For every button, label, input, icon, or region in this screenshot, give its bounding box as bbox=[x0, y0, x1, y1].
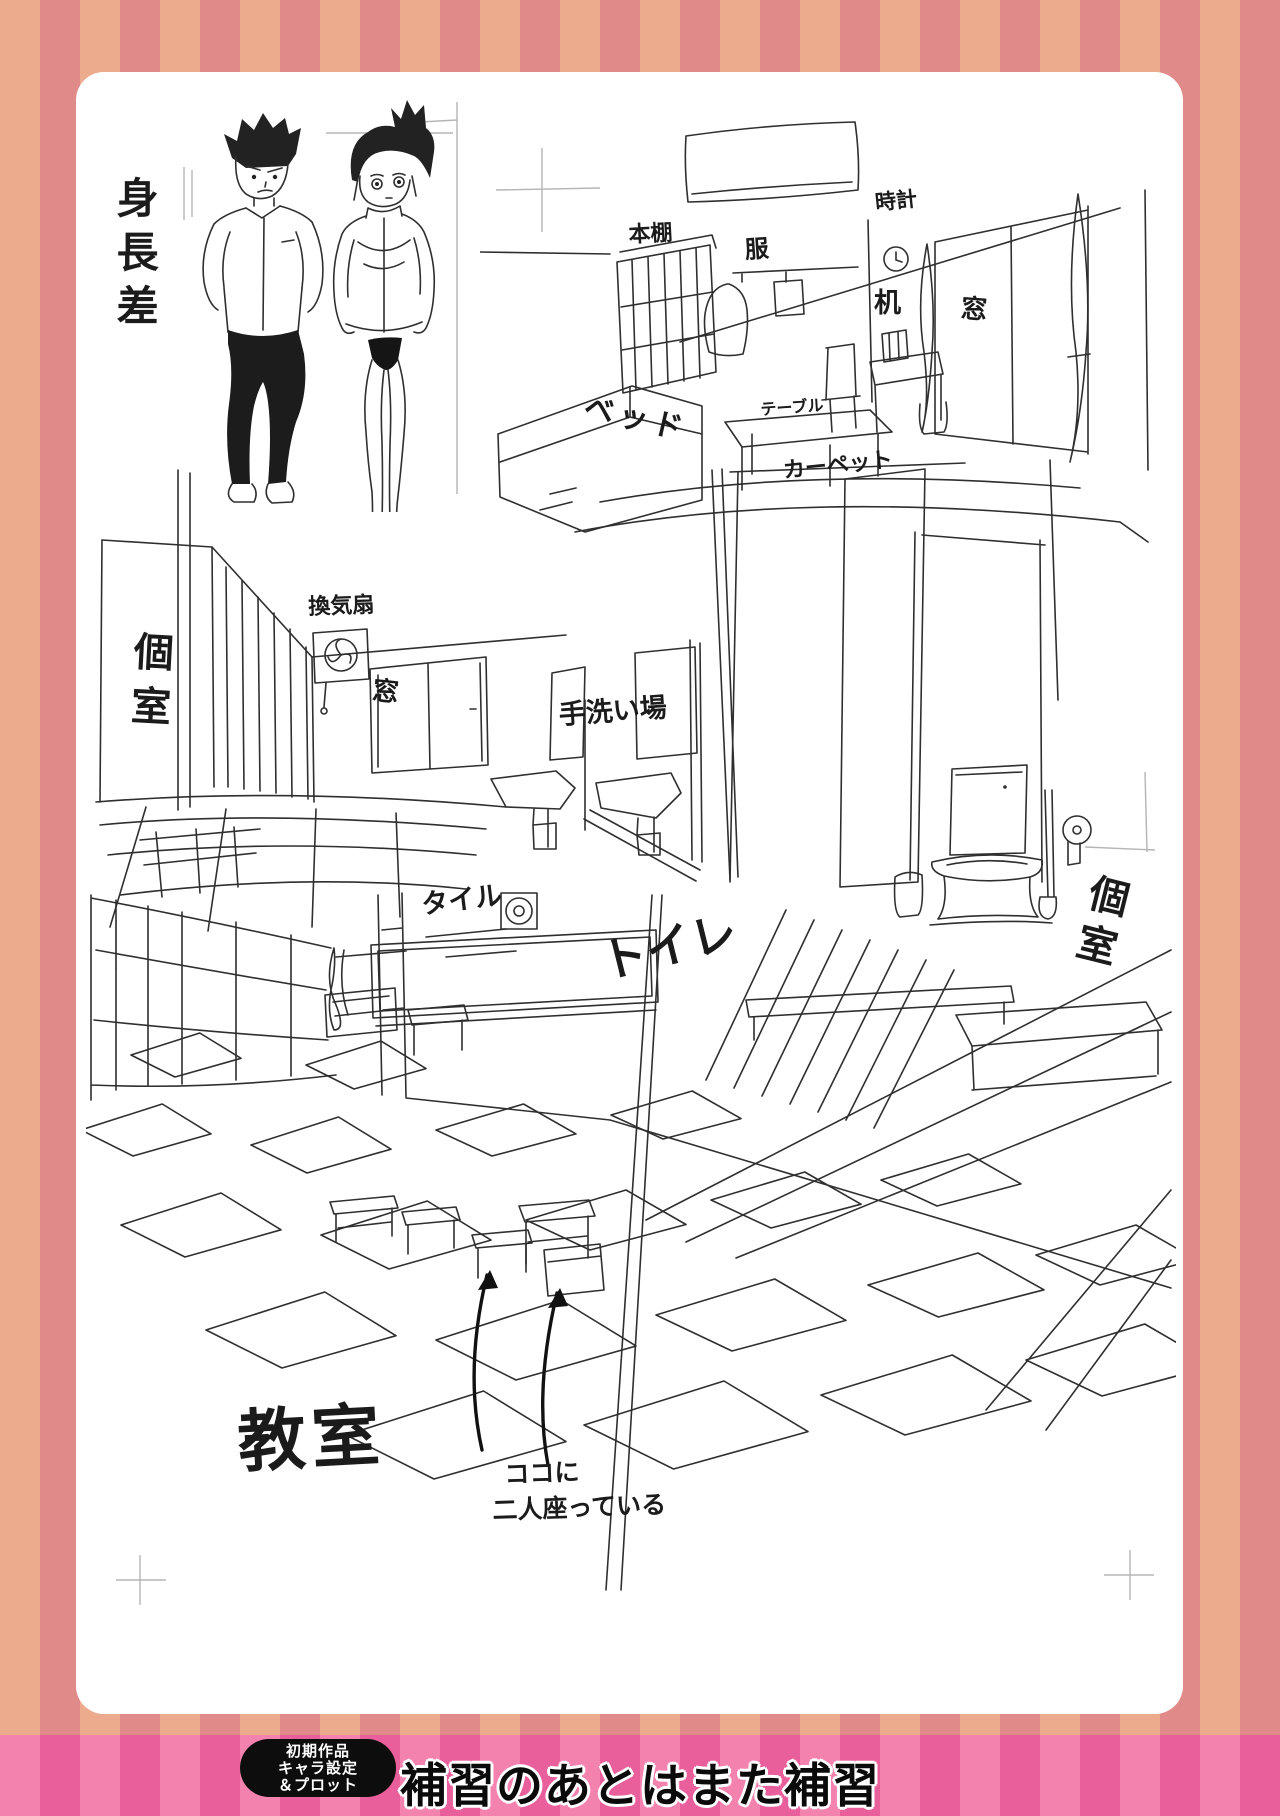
classroom-note-line1: ココに bbox=[504, 1459, 580, 1488]
height-diff-label: 身長差 bbox=[112, 176, 156, 338]
footer-title: 補習のあとはまた補習 bbox=[400, 1747, 880, 1816]
bedroom-desk-label: 机 bbox=[874, 290, 901, 318]
fan-icon bbox=[313, 629, 369, 714]
artbook-page: 身長差 本棚 服 時計 机 窓 ベッド テーブル カーペット 個室 換気扇 窓 … bbox=[76, 72, 1183, 1714]
classroom-sketch bbox=[86, 890, 1176, 1705]
bedroom-clothes-label: 服 bbox=[744, 236, 770, 263]
footer-badge-line2: キャラ設定 bbox=[240, 1760, 396, 1777]
footer-badge: 初期作品 キャラ設定 ＆プロット bbox=[240, 1739, 396, 1797]
wall-hatches bbox=[706, 910, 954, 1128]
washroom-window-label: 窓 bbox=[371, 678, 400, 708]
bedroom-window-label: 窓 bbox=[960, 296, 988, 325]
bedroom-clock-label: 時計 bbox=[874, 188, 918, 214]
footer-badge-line1: 初期作品 bbox=[240, 1743, 396, 1760]
classroom-note-line2: 二人座っている bbox=[492, 1492, 667, 1524]
classroom-name-label: 教室 bbox=[236, 1400, 388, 1479]
washroom-stall-label: 個室 bbox=[124, 630, 172, 740]
seat-arrows bbox=[474, 1270, 568, 1465]
toilet-paper-icon bbox=[1063, 816, 1091, 865]
footer-banner: 初期作品 キャラ設定 ＆プロット 補習のあとはまた補習 bbox=[0, 1735, 1280, 1816]
bedroom-bookshelf-label: 本棚 bbox=[628, 222, 673, 247]
washroom-fan-label: 換気扇 bbox=[308, 594, 375, 619]
footer-badge-line3: ＆プロット bbox=[240, 1777, 396, 1794]
clock-icon bbox=[884, 247, 908, 271]
